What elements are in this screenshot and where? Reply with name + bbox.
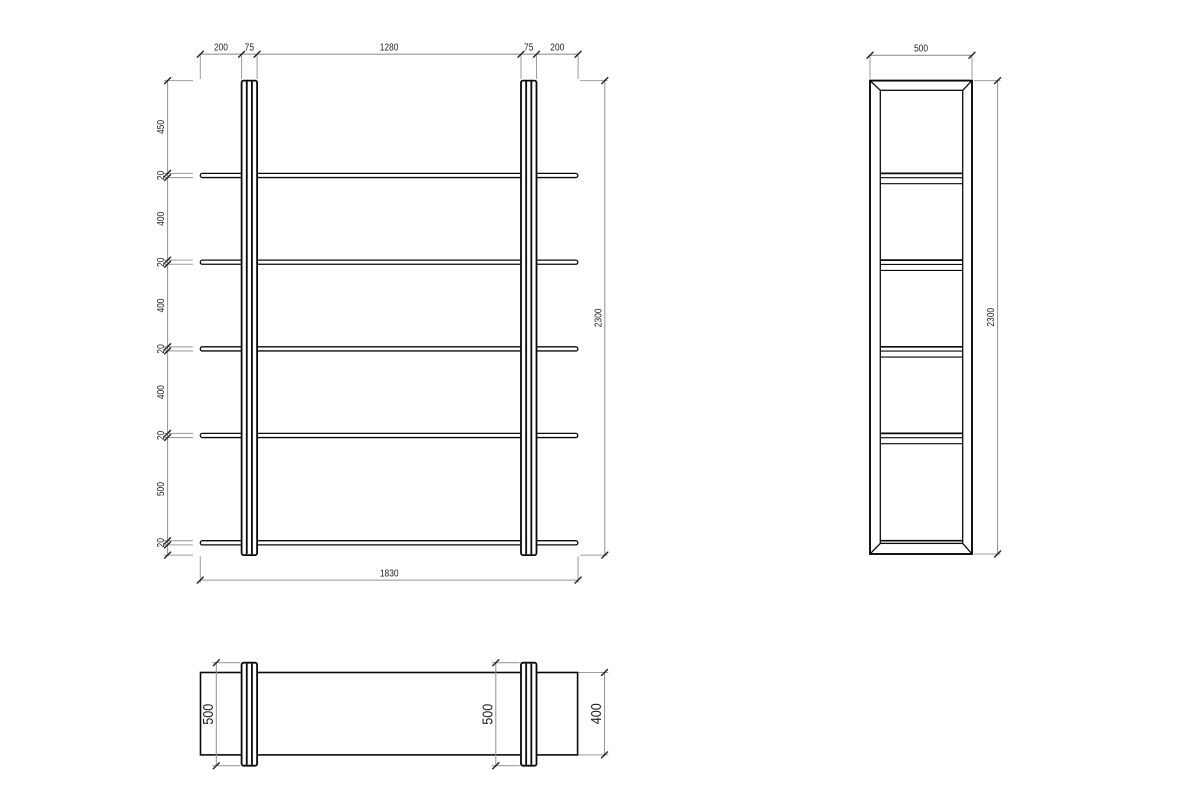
svg-text:400: 400 — [156, 211, 167, 226]
svg-text:500: 500 — [914, 44, 929, 55]
svg-text:1830: 1830 — [380, 568, 399, 579]
svg-text:20: 20 — [156, 344, 167, 354]
svg-text:2300: 2300 — [593, 308, 604, 327]
svg-text:75: 75 — [245, 43, 254, 54]
svg-text:500: 500 — [201, 704, 217, 725]
svg-text:500: 500 — [480, 704, 496, 725]
svg-text:500: 500 — [156, 482, 167, 497]
svg-text:450: 450 — [156, 119, 167, 134]
svg-text:200: 200 — [214, 43, 229, 54]
svg-text:200: 200 — [550, 43, 565, 54]
svg-text:400: 400 — [156, 385, 167, 400]
svg-text:400: 400 — [589, 703, 605, 724]
svg-text:20: 20 — [156, 430, 167, 440]
svg-text:1280: 1280 — [380, 43, 399, 54]
svg-text:20: 20 — [156, 257, 167, 267]
svg-text:75: 75 — [524, 43, 533, 54]
svg-text:400: 400 — [156, 298, 167, 313]
svg-text:2300: 2300 — [986, 307, 997, 326]
svg-text:20: 20 — [156, 170, 167, 180]
svg-text:20: 20 — [156, 538, 167, 548]
